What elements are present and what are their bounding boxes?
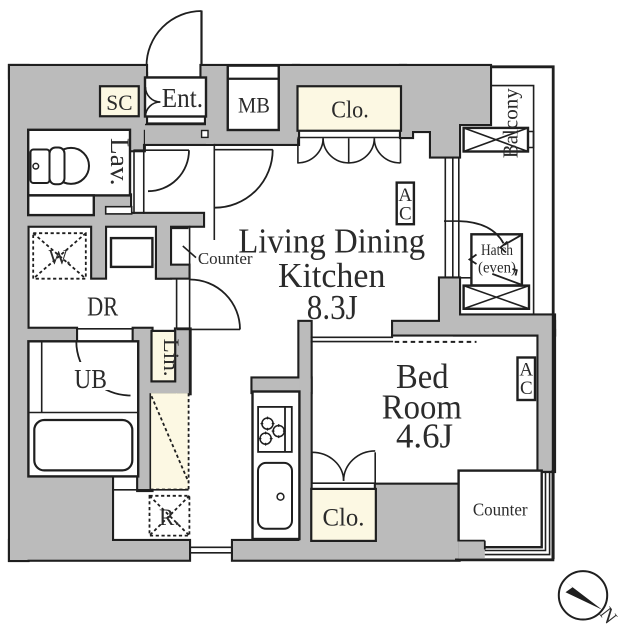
svg-text:Counter: Counter — [473, 499, 528, 519]
svg-text:Clo.: Clo. — [323, 505, 365, 532]
svg-text:Lin.: Lin. — [159, 339, 184, 377]
svg-text:SC: SC — [106, 90, 132, 115]
svg-text:C: C — [520, 378, 533, 399]
svg-text:DR: DR — [87, 291, 118, 321]
svg-text:MB: MB — [238, 93, 270, 118]
svg-text:W.: W. — [49, 245, 72, 269]
svg-text:Living Dining: Living Dining — [238, 221, 425, 260]
svg-text:Clo.: Clo. — [331, 97, 369, 123]
svg-text:R.: R. — [159, 505, 180, 530]
svg-text:Lav.: Lav. — [105, 138, 134, 186]
svg-text:UB: UB — [74, 364, 107, 394]
svg-text:C: C — [399, 204, 412, 225]
svg-text:8.3J: 8.3J — [307, 288, 358, 327]
svg-text:(even): (even) — [478, 260, 516, 277]
svg-text:Ent.: Ent. — [162, 83, 203, 113]
svg-text:4.6J: 4.6J — [396, 417, 453, 456]
svg-text:Balcony: Balcony — [498, 88, 522, 158]
svg-text:Hatch: Hatch — [481, 242, 513, 259]
